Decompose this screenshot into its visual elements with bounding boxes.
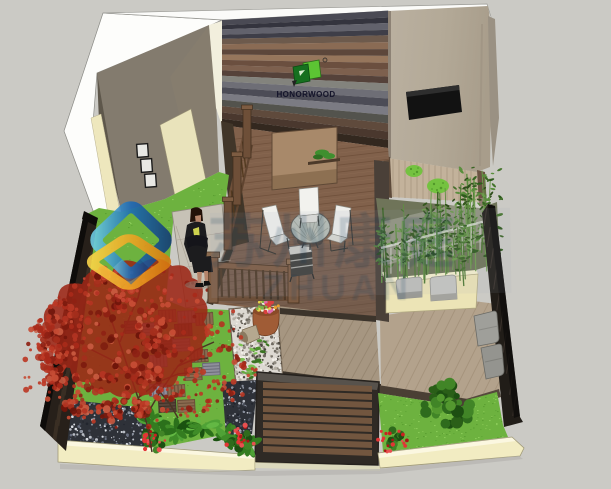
svg-text:HONORWOOD: HONORWOOD: [276, 90, 335, 99]
svg-text:苏州康庭: 苏州康庭: [208, 210, 460, 275]
svg-text:ZHUAN: ZHUAN: [262, 267, 413, 308]
